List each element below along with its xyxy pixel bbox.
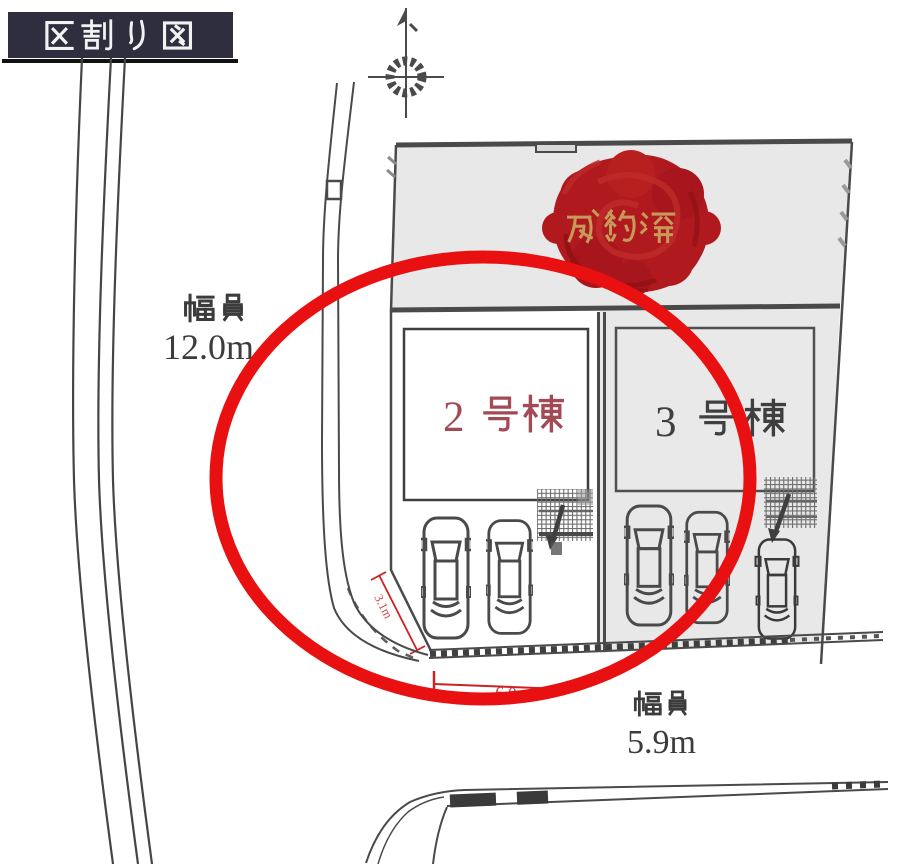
svg-text:3: 3 (655, 399, 677, 446)
svg-text:2: 2 (443, 394, 465, 441)
svg-text:5.9m: 5.9m (627, 724, 696, 761)
svg-text:12.0m: 12.0m (163, 327, 254, 367)
